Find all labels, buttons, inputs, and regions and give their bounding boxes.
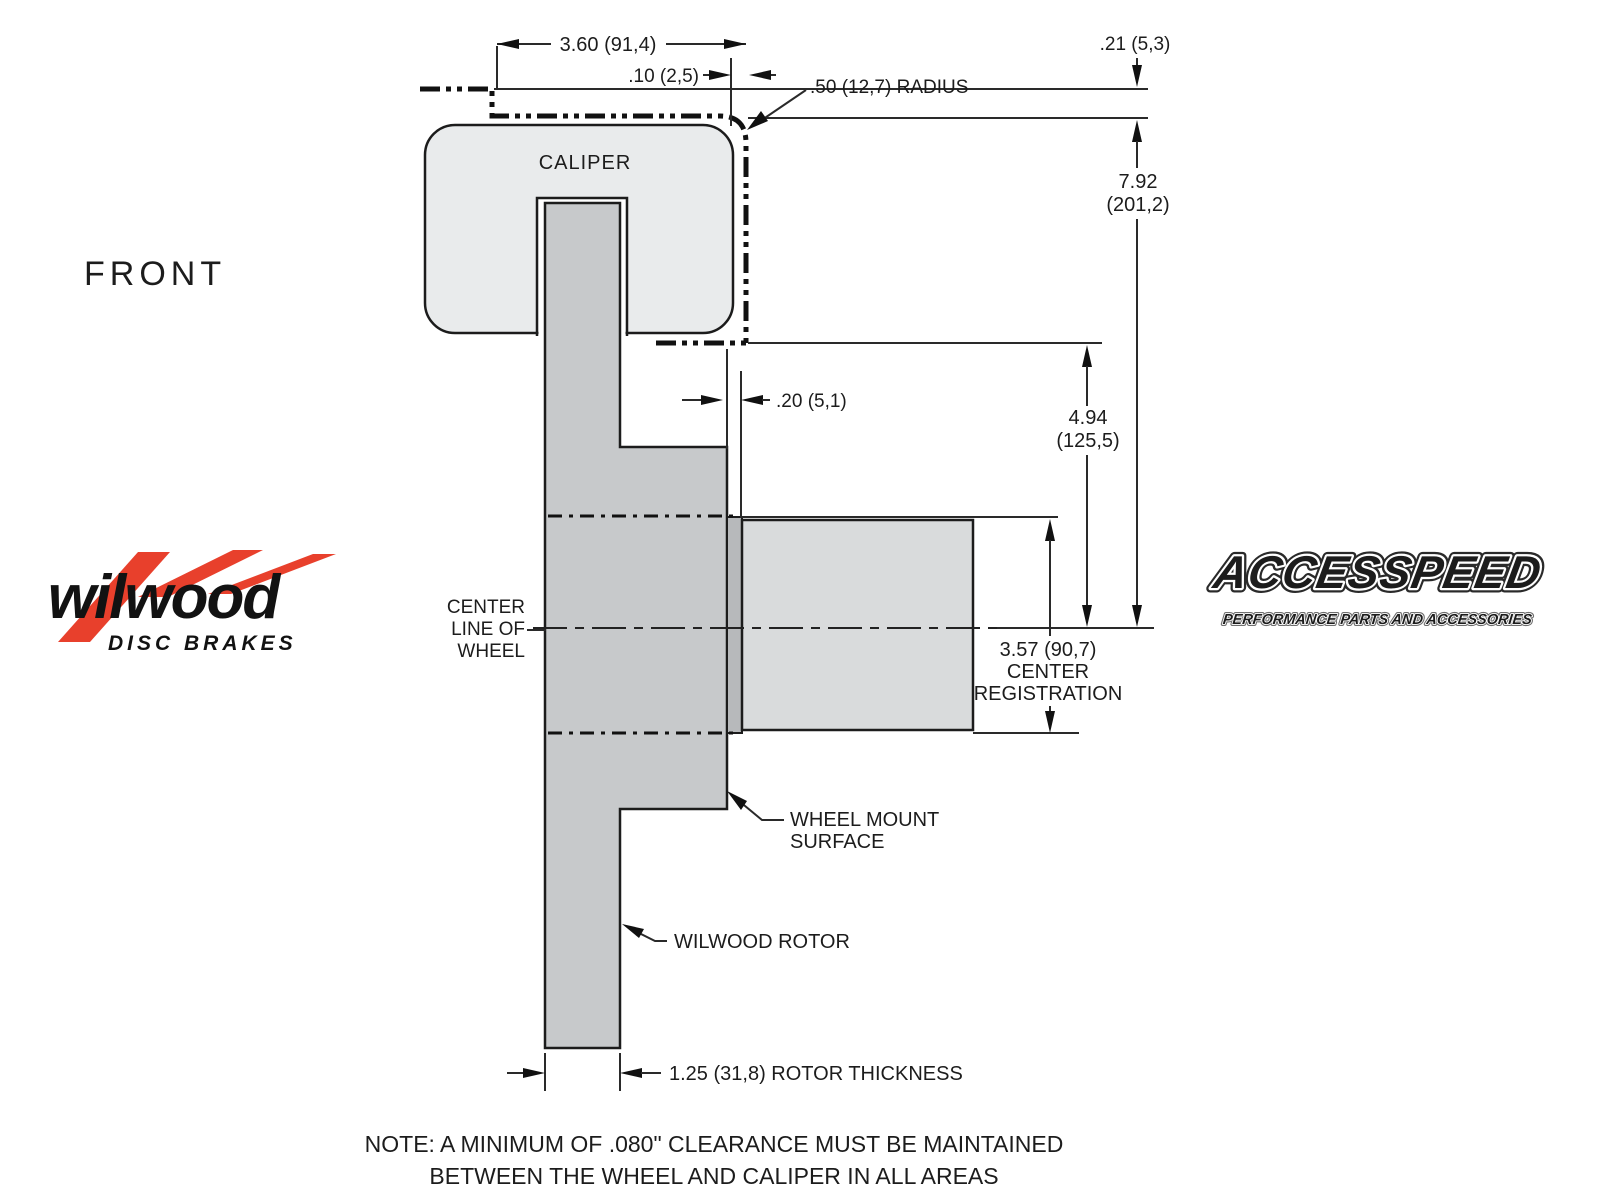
wilwood-logo: wilwood DISC BRAKES [48, 550, 336, 655]
centerline-label-1: CENTER [447, 597, 525, 618]
wilwood-logo-text: wilwood [48, 563, 282, 632]
dim-rotor-thickness-text: 1.25 (31,8) ROTOR THICKNESS [669, 1063, 963, 1085]
wheel-mount-label-2: SURFACE [790, 831, 884, 853]
dim-registration-word2: REGISTRATION [974, 683, 1123, 705]
dim-rotor-thickness: 1.25 (31,8) ROTOR THICKNESS [507, 1063, 963, 1085]
accesspeed-logo: ACCESSPEED ACCESSPEED ACCESSPEED PERFORM… [1209, 546, 1546, 628]
caliper-label: CALIPER [539, 152, 632, 174]
registration-boss-shape [742, 520, 973, 730]
accesspeed-logo-tagline: PERFORMANCE PARTS AND ACCESSORIES [1222, 612, 1533, 628]
dim-mount-offset: .20 (5,1) [682, 391, 847, 412]
dim-caliper-width-text: 3.60 (91,4) [560, 34, 657, 56]
wilwood-rotor-label: WILWOOD ROTOR [674, 931, 850, 953]
dim-top-clearance-text: .21 (5,3) [1100, 34, 1171, 55]
dim-inner-radius: 4.94 (125,5) [1056, 345, 1119, 627]
note-line-1: NOTE: A MINIMUM OF .080" CLEARANCE MUST … [365, 1131, 1064, 1157]
dim-inner-radius-mm: (125,5) [1056, 430, 1119, 452]
note-line-2: BETWEEN THE WHEEL AND CALIPER IN ALL ARE… [429, 1163, 998, 1189]
centerline-label: CENTER LINE OF WHEEL [447, 597, 525, 662]
accesspeed-logo-text: ACCESSPEED [1209, 546, 1546, 598]
dim-outer-radius: 7.92 (201,2) [1106, 120, 1169, 627]
dim-corner-radius: .50 (12,7) RADIUS [747, 77, 968, 130]
hub-flange-shape [727, 517, 742, 733]
view-label: FRONT [84, 255, 226, 293]
dim-center-registration: 3.57 (90,7) CENTER REGISTRATION [974, 519, 1123, 733]
wilwood-rotor-callout: WILWOOD ROTOR [622, 924, 850, 953]
dim-edge-gap: .10 (2,5) [628, 66, 776, 87]
dim-edge-gap-text: .10 (2,5) [628, 66, 699, 87]
dim-outer-radius-in: 7.92 [1119, 171, 1158, 193]
dim-registration-value: 3.57 (90,7) [1000, 639, 1097, 661]
centerline-label-2: LINE OF [451, 619, 525, 640]
dim-top-clearance: .21 (5,3) [1100, 34, 1171, 87]
wilwood-logo-tagline: DISC BRAKES [108, 632, 297, 655]
dim-corner-radius-text: .50 (12,7) RADIUS [810, 77, 968, 98]
dim-caliper-width: 3.60 (91,4) [497, 34, 746, 56]
dim-inner-radius-in: 4.94 [1069, 407, 1108, 429]
technical-drawing: 3.60 (91,4) .10 (2,5) .50 (12,7) RADIUS … [0, 0, 1600, 1200]
clearance-note: NOTE: A MINIMUM OF .080" CLEARANCE MUST … [365, 1131, 1064, 1189]
dim-mount-offset-text: .20 (5,1) [776, 391, 847, 412]
dim-outer-radius-mm: (201,2) [1106, 194, 1169, 216]
dim-registration-word1: CENTER [1007, 661, 1089, 683]
wheel-mount-surface-callout: WHEEL MOUNT SURFACE [727, 791, 939, 853]
centerline-label-3: WHEEL [457, 641, 525, 662]
wheel-mount-label-1: WHEEL MOUNT [790, 809, 939, 831]
